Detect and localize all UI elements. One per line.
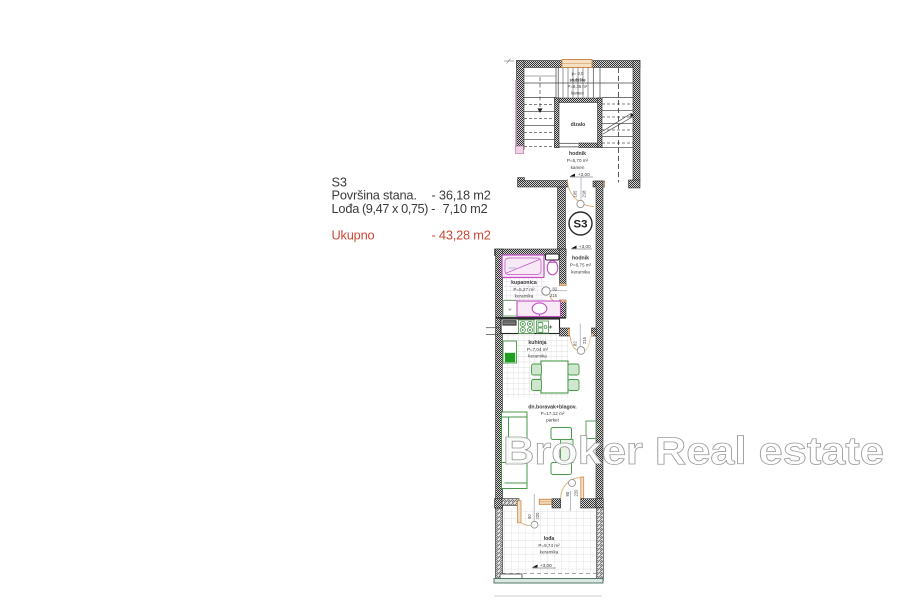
svg-text:keramika: keramika (528, 353, 547, 358)
svg-text:+3,00: +3,00 (579, 244, 591, 249)
svg-text:P=9,74 m²: P=9,74 m² (538, 543, 560, 548)
svg-text:kamen: kamen (571, 165, 585, 170)
svg-text:+3,00: +3,00 (578, 172, 590, 177)
svg-text:P=5,27 m²: P=5,27 m² (513, 287, 535, 292)
svg-text:lođa: lođa (544, 536, 555, 542)
svg-text:(9,47 x 0,75) -: (9,47 x 0,75) - (362, 201, 435, 216)
svg-text:hodnik: hodnik (569, 151, 586, 157)
svg-text:90: 90 (565, 491, 570, 496)
svg-text:7,10 m2: 7,10 m2 (443, 201, 488, 216)
svg-text:82: 82 (573, 341, 578, 346)
svg-text:215: 215 (582, 336, 587, 344)
svg-text:+3,00: +3,00 (540, 563, 552, 568)
svg-text:dizalo: dizalo (571, 122, 586, 128)
svg-text:hodnik: hodnik (572, 256, 589, 262)
svg-text:keramika: keramika (540, 549, 559, 554)
svg-text:Ukupno: Ukupno (332, 227, 375, 242)
svg-text:dn.boravak+blagov.: dn.boravak+blagov. (528, 405, 577, 411)
svg-text:P=6,75 m²: P=6,75 m² (570, 263, 592, 268)
svg-text:215: 215 (550, 293, 558, 298)
svg-text:kamen: kamen (571, 91, 584, 96)
svg-text:- 43,28 m2: - 43,28 m2 (432, 227, 491, 242)
svg-text:P=7,04 m²: P=7,04 m² (527, 347, 549, 352)
svg-text:P=9,36 m²: P=9,36 m² (568, 84, 588, 89)
svg-text:Broker Real estate: Broker Real estate (503, 430, 884, 473)
svg-text:p= 3,0: p= 3,0 (572, 71, 584, 76)
svg-text:P=5,70 m²: P=5,70 m² (567, 158, 589, 163)
svg-text:parket: parket (546, 418, 559, 423)
svg-text:S3: S3 (574, 219, 588, 231)
svg-text:stubište: stubište (569, 78, 586, 83)
svg-text:keramika: keramika (571, 270, 590, 275)
svg-text:keramika: keramika (515, 293, 534, 298)
svg-text:kupaonica: kupaonica (511, 280, 537, 286)
svg-text:w: w (509, 306, 512, 311)
svg-text:105: 105 (573, 190, 578, 198)
svg-text:220: 220 (573, 489, 578, 497)
svg-text:kuhinja: kuhinja (528, 340, 546, 346)
svg-text:218: 218 (582, 190, 587, 198)
svg-text:P=17,12 m²: P=17,12 m² (541, 411, 565, 416)
svg-text:82: 82 (553, 287, 558, 292)
svg-text:Lođa: Lođa (332, 201, 361, 216)
